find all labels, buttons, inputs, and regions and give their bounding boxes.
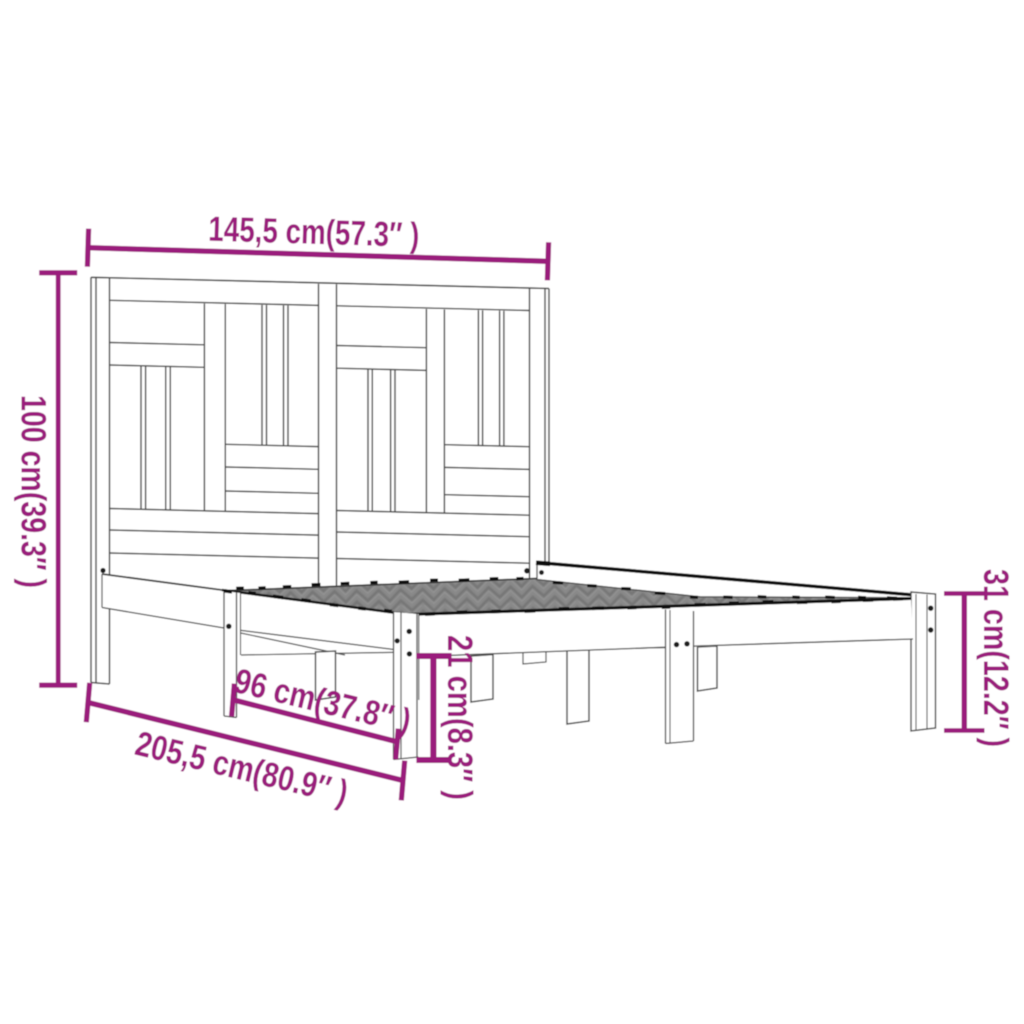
svg-text:145,5 cm(57.3″ ): 145,5 cm(57.3″ ) <box>208 208 420 254</box>
svg-text:100 cm(39.3″ ): 100 cm(39.3″ ) <box>14 395 53 588</box>
svg-text:31 cm(12.2″ ): 31 cm(12.2″ ) <box>976 569 1015 747</box>
svg-text:21 cm(8.3″ ): 21 cm(8.3″ ) <box>440 635 479 800</box>
